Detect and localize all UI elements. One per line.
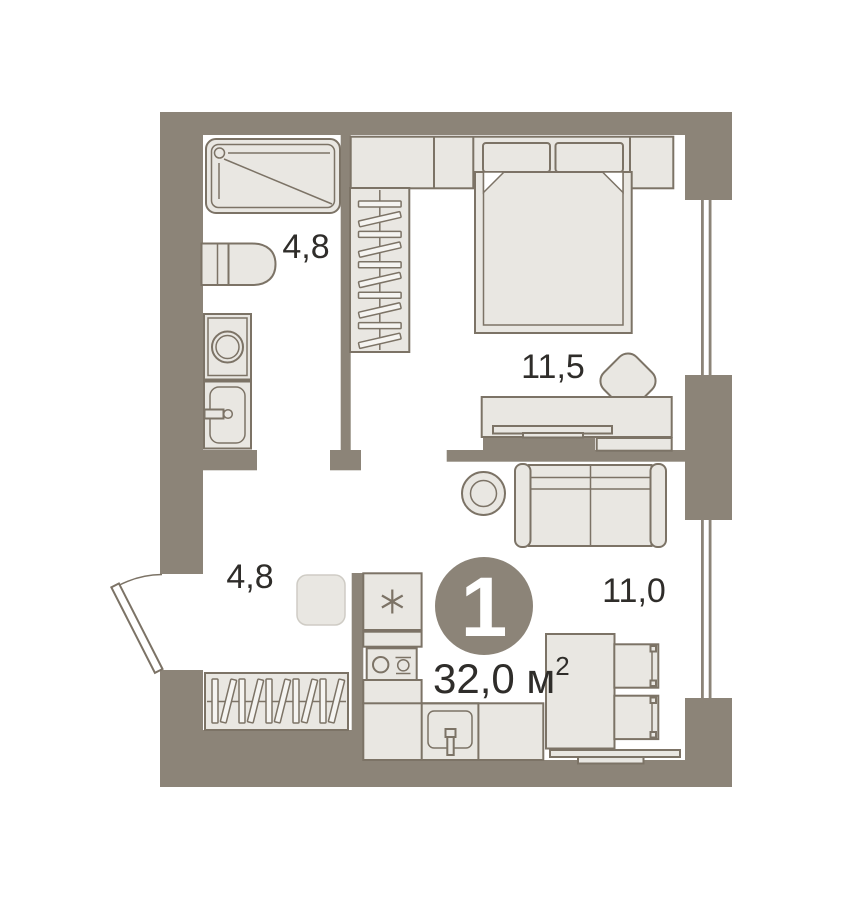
wall-kitchen-stub	[352, 573, 364, 760]
wall-right-top-corner	[685, 135, 732, 200]
kitchen-faucet-icon	[446, 729, 456, 737]
wall-left-lower-jamb	[160, 670, 203, 787]
bedroom	[350, 137, 673, 451]
wall-bathroom-south-stub	[203, 450, 257, 470]
door-leaf	[111, 583, 162, 672]
hallway	[205, 575, 348, 730]
wall-top	[160, 112, 732, 135]
wall-room-divider-block	[483, 437, 595, 451]
bathroom-faucet-icon	[205, 410, 224, 419]
wall-bathroom-partition-foot	[330, 450, 361, 470]
hallway-area-label: 4,8	[226, 558, 273, 596]
rug	[462, 472, 505, 515]
floor-plan-drawing: 4,8 4,8 11,5 11,0 1 32,0 м2	[0, 0, 844, 900]
bathroom	[202, 139, 341, 449]
window-glass-line	[709, 196, 712, 377]
door-swing-arc	[120, 575, 163, 586]
wall-right-bottom-corner	[685, 698, 732, 787]
bed-pillow	[483, 143, 550, 172]
toilet-tank	[202, 244, 229, 286]
window-glass-line	[701, 517, 704, 701]
dining-chair	[614, 696, 658, 739]
bathroom-area-label: 4,8	[282, 228, 329, 266]
wall-left-upper	[160, 112, 203, 574]
window-glass-line	[709, 517, 712, 701]
kitchen-faucet-icon	[447, 737, 453, 755]
total-area-label: 32,0 м2	[433, 651, 570, 702]
kitchen-counter	[363, 680, 421, 704]
bench	[578, 757, 644, 764]
stool	[297, 575, 345, 625]
living-room	[462, 464, 666, 547]
sofa-armrest	[651, 464, 667, 547]
wall-right-middle-pier	[685, 375, 732, 520]
wall-bottom	[363, 760, 732, 787]
wall-room-divider-bar	[447, 450, 690, 462]
dining-chair	[614, 644, 658, 687]
sofa-armrest	[515, 464, 531, 547]
tv-shelf	[597, 438, 672, 451]
window-glass-line	[701, 196, 704, 377]
wall-bottom-left-thick	[203, 730, 363, 787]
total-area-superscript: 2	[555, 651, 569, 681]
desk-drawer	[523, 433, 583, 438]
shower-tray	[206, 139, 340, 213]
bedroom-area-label: 11,5	[521, 348, 585, 386]
living-area-label: 11,0	[602, 572, 666, 610]
kitchen-shelf	[363, 632, 421, 647]
entrance-door	[111, 575, 162, 673]
floor-plan: 4,8 4,8 11,5 11,0 1 32,0 м2	[0, 0, 844, 900]
double-bed	[475, 172, 632, 333]
toilet-bowl	[229, 244, 276, 286]
bench	[550, 750, 680, 757]
bed-pillow	[556, 143, 624, 172]
rooms-count-number: 1	[461, 560, 508, 654]
